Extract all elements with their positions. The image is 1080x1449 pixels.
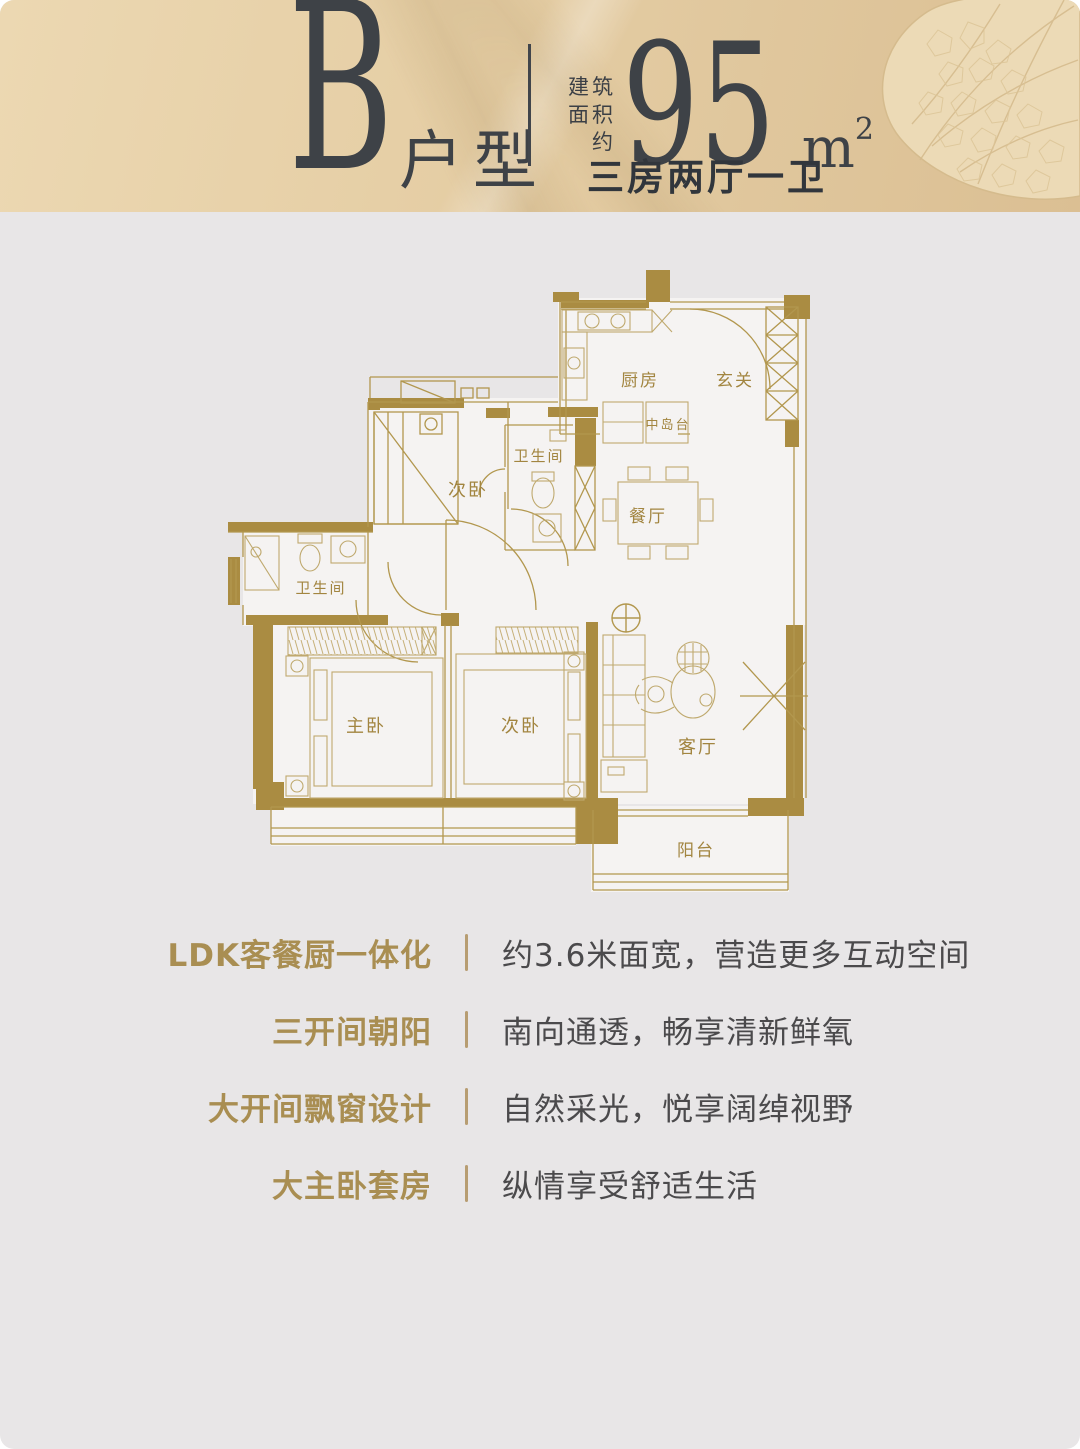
room-label-island: 中岛台 <box>645 417 690 433</box>
room-label-bedroom-lower: 次卧 <box>501 716 541 737</box>
room-label-living: 客厅 <box>678 737 718 758</box>
feature-desc: 纵情享受舒适生活 <box>502 1161 758 1206</box>
feature-row-baywindow: 大开间飘窗设计 自然采光，悦享阔绰视野 <box>0 1080 1080 1132</box>
unit-type-letter: B <box>288 0 394 204</box>
compass-icon <box>612 604 640 632</box>
room-label-bedroom-upper: 次卧 <box>448 480 488 501</box>
room-label-balcony: 阳台 <box>677 841 715 861</box>
feature-row-ldk: LDK客餐厨一体化 约3.6米面宽，营造更多互动空间 <box>0 926 1080 978</box>
unit-type-label: 户型 <box>399 110 547 202</box>
feature-title: 大主卧套房 <box>0 1161 432 1206</box>
feature-row-orientation: 三开间朝阳 南向通透，畅享清新鲜氧 <box>0 1003 1080 1055</box>
room-label-entry: 玄关 <box>716 371 754 391</box>
floor-plan-svg: 厨房 玄关 中岛台 卫生间 次卧 餐厅 卫生间 主卧 次卧 客厅 阳台 <box>228 262 828 912</box>
feature-divider <box>465 1165 468 1202</box>
room-label-bath-upper: 卫生间 <box>513 447 564 465</box>
layout-summary: 三房两厅一卫 <box>587 147 827 201</box>
feature-desc: 约3.6米面宽，营造更多互动空间 <box>502 930 970 975</box>
feature-divider <box>465 1011 468 1048</box>
area-unit-sup: 2 <box>855 112 874 147</box>
feature-desc: 自然采光，悦享阔绰视野 <box>502 1084 854 1129</box>
room-label-bath-left: 卫生间 <box>295 579 346 597</box>
feature-list: LDK客餐厨一体化 约3.6米面宽，营造更多互动空间 三开间朝阳 南向通透，畅享… <box>0 926 1080 1234</box>
feature-divider <box>465 1088 468 1125</box>
feature-desc: 南向通透，畅享清新鲜氧 <box>502 1007 854 1052</box>
feature-title: 三开间朝阳 <box>0 1007 432 1052</box>
room-label-master: 主卧 <box>346 716 386 737</box>
header-banner: B 户型 建筑 面积 约 95 m2 三房两厅一卫 <box>0 0 1080 212</box>
room-label-dining: 餐厅 <box>629 507 667 527</box>
header-divider <box>528 44 531 166</box>
floor-plan: 厨房 玄关 中岛台 卫生间 次卧 餐厅 卫生间 主卧 次卧 客厅 阳台 <box>228 262 828 912</box>
area-prefix: 建筑 面积 约 <box>568 74 616 157</box>
feature-title: 大开间飘窗设计 <box>0 1084 432 1129</box>
floorplan-poster: B 户型 建筑 面积 约 95 m2 三房两厅一卫 <box>0 0 1080 1449</box>
feature-row-mastersuite: 大主卧套房 纵情享受舒适生活 <box>0 1157 1080 1209</box>
feature-title: LDK客餐厨一体化 <box>0 930 432 975</box>
area-prefix-line-1: 建筑 <box>568 74 616 102</box>
feature-divider <box>465 934 468 971</box>
room-label-kitchen: 厨房 <box>621 371 659 391</box>
area-prefix-line-2: 面积 <box>568 102 616 130</box>
